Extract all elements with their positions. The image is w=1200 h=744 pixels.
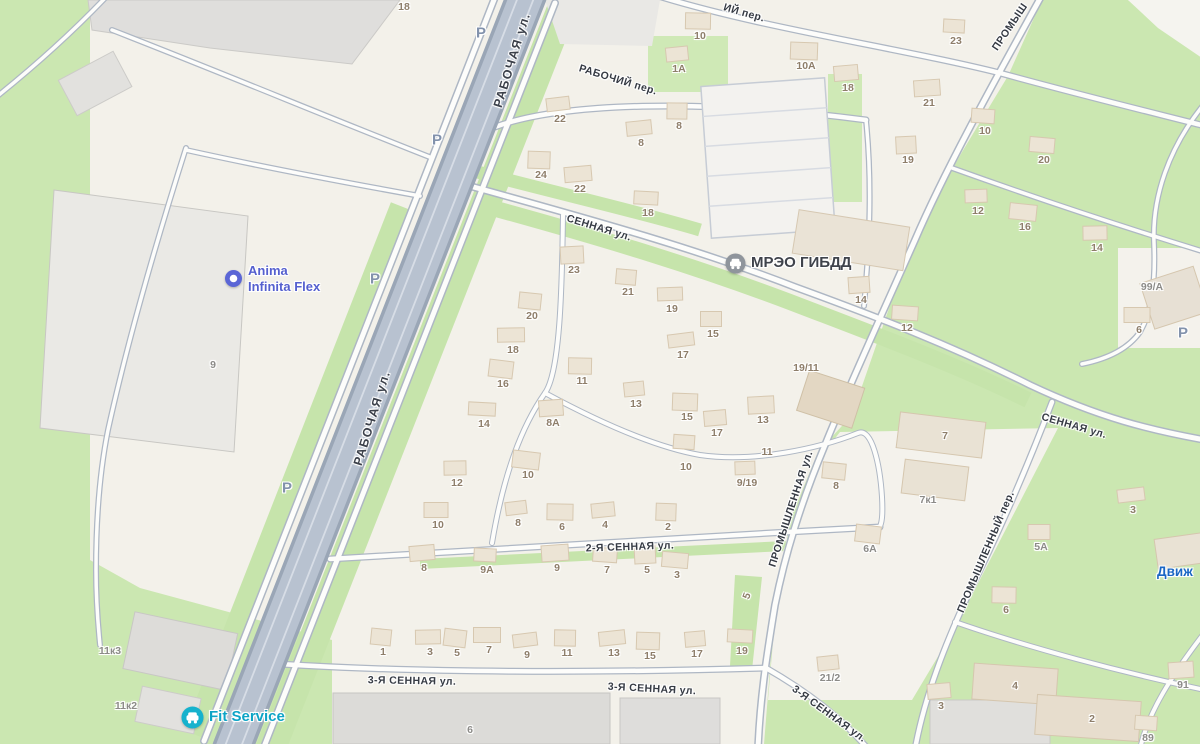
address-label: 8: [638, 137, 644, 149]
address-label: 4: [1012, 680, 1018, 692]
address-label: 89: [1142, 732, 1154, 744]
fit-service-label: Fit Service: [209, 708, 285, 726]
street-label: СЕННАЯ ул.: [1040, 411, 1108, 441]
address-label: 9/19: [737, 477, 757, 489]
address-label: 8: [833, 480, 839, 492]
address-label: 3: [674, 569, 680, 581]
address-label: 8А: [546, 417, 559, 429]
poi-text-line: Движ: [1157, 564, 1193, 580]
address-label: 5: [740, 591, 753, 601]
address-label: 10: [680, 461, 692, 473]
mreo-gibdd-label: МРЭО ГИБДД: [751, 254, 851, 272]
address-label: 7: [942, 430, 948, 442]
address-label: 7к1: [920, 494, 937, 506]
poi-text-line: Anima: [248, 263, 320, 279]
address-label: 4: [602, 519, 608, 531]
address-label: 91: [1177, 679, 1189, 691]
poi-anima-infinita-flex[interactable]: AnimaInfinita Flex: [224, 263, 320, 295]
dvizh-label: Движ: [1157, 564, 1193, 580]
address-label: 9: [524, 649, 530, 661]
address-label: 2: [665, 521, 671, 533]
address-label: 7: [604, 564, 610, 576]
poi-text-line: Infinita Flex: [248, 279, 320, 295]
labels-layer: 18101А10А18232110192012161499/А622882422…: [0, 0, 1200, 744]
mreo-gibdd-icon: [725, 253, 746, 274]
poi-mreo-gibdd[interactable]: МРЭО ГИБДД: [725, 253, 851, 274]
address-label: 9: [554, 562, 560, 574]
address-label: 12: [972, 205, 984, 217]
parking-icon[interactable]: P: [282, 480, 292, 497]
address-label: 17: [711, 427, 723, 439]
address-label: 5: [644, 564, 650, 576]
street-label: ПРОМЫШЛЕННЫЙ пер.: [955, 489, 1017, 614]
address-label: 8: [676, 120, 682, 132]
address-label: 5: [454, 647, 460, 659]
address-label: 15: [707, 328, 719, 340]
address-label: 15: [681, 411, 693, 423]
street-label: 3-Я СЕННАЯ ул.: [607, 681, 696, 698]
address-label: 14: [478, 418, 490, 430]
address-label: 99/А: [1141, 281, 1163, 293]
address-label: 7: [486, 644, 492, 656]
address-label: 11к2: [115, 700, 137, 712]
address-label: 22: [554, 113, 566, 125]
address-label: 16: [1019, 221, 1031, 233]
address-label: 10: [979, 125, 991, 137]
address-label: 21/2: [820, 672, 840, 684]
address-label: 13: [608, 647, 620, 659]
address-label: 12: [901, 322, 913, 334]
parking-icon[interactable]: P: [370, 271, 380, 288]
address-label: 9А: [480, 564, 493, 576]
poi-dvizh[interactable]: Движ: [1157, 564, 1193, 580]
address-label: 11: [761, 446, 772, 458]
address-label: 23: [950, 35, 962, 47]
address-label: 11к3: [99, 645, 121, 657]
address-label: 6: [559, 521, 565, 533]
street-label: ПРОМЫШ: [990, 1, 1030, 53]
address-label: 15: [644, 650, 656, 662]
address-label: 22: [574, 183, 586, 195]
address-label: 13: [630, 398, 642, 410]
address-label: 6А: [863, 543, 876, 555]
address-label: 18: [507, 344, 519, 356]
address-label: 14: [1091, 242, 1103, 254]
address-label: 8: [515, 517, 521, 529]
address-label: 10: [694, 30, 706, 42]
parking-icon[interactable]: P: [476, 25, 486, 42]
address-label: 11: [576, 375, 587, 387]
address-label: 6: [1003, 604, 1009, 616]
address-label: 21: [923, 97, 935, 109]
address-label: 12: [451, 477, 463, 489]
poi-text-line: Fit Service: [209, 708, 285, 726]
address-label: 21: [622, 286, 634, 298]
poi-text-line: МРЭО ГИБДД: [751, 254, 851, 272]
address-label: 17: [691, 648, 703, 660]
address-label: 6: [467, 724, 473, 736]
address-label: 20: [1038, 154, 1050, 166]
address-label: 11: [561, 647, 572, 659]
street-label: ПРОМЫШЛЕННАЯ ул.: [767, 449, 816, 568]
address-label: 18: [642, 207, 654, 219]
address-label: 24: [535, 169, 547, 181]
anima-infinita-flex-icon: [224, 269, 243, 288]
street-label: СЕННАЯ ул.: [565, 212, 633, 243]
address-label: 3: [427, 646, 433, 658]
address-label: 1А: [672, 63, 685, 75]
anima-infinita-flex-label: AnimaInfinita Flex: [248, 263, 320, 295]
address-label: 17: [677, 349, 689, 361]
poi-fit-service[interactable]: Fit Service: [181, 706, 285, 729]
fit-service-icon: [181, 706, 204, 729]
address-label: 10А: [796, 60, 815, 72]
parking-icon[interactable]: P: [432, 132, 442, 149]
address-label: 5А: [1034, 541, 1047, 553]
address-label: 14: [855, 294, 867, 306]
address-label: 23: [568, 264, 580, 276]
address-label: 3: [1130, 504, 1136, 516]
address-label: 10: [522, 469, 534, 481]
address-label: 18: [398, 1, 410, 13]
address-label: 19/11: [793, 362, 819, 374]
address-label: 20: [526, 310, 538, 322]
parking-icon[interactable]: P: [1178, 325, 1188, 342]
address-label: 19: [736, 645, 748, 657]
address-label: 9: [210, 359, 216, 371]
address-label: 16: [497, 378, 509, 390]
address-label: 1: [380, 646, 386, 658]
street-label: РАБОЧИЙ пер.: [577, 62, 658, 97]
address-label: 3: [938, 700, 944, 712]
address-label: 10: [432, 519, 444, 531]
street-label: 3-Я СЕННАЯ ул.: [790, 683, 869, 744]
address-label: 6: [1136, 324, 1142, 336]
street-label: РАБОЧАЯ ул.: [351, 369, 393, 468]
map-canvas[interactable]: 18101А10А18232110192012161499/А622882422…: [0, 0, 1200, 744]
address-label: 13: [757, 414, 769, 426]
address-label: 19: [902, 154, 914, 166]
street-label: 2-Я СЕННАЯ ул.: [586, 539, 675, 554]
street-label: РАБОЧАЯ ул.: [491, 11, 533, 110]
address-label: 8: [421, 562, 427, 574]
street-label: 3-Я СЕННАЯ ул.: [368, 674, 457, 688]
address-label: 19: [666, 303, 678, 315]
address-label: 18: [842, 82, 854, 94]
address-label: 2: [1089, 713, 1095, 725]
street-label: ИЙ пер.: [722, 1, 766, 24]
